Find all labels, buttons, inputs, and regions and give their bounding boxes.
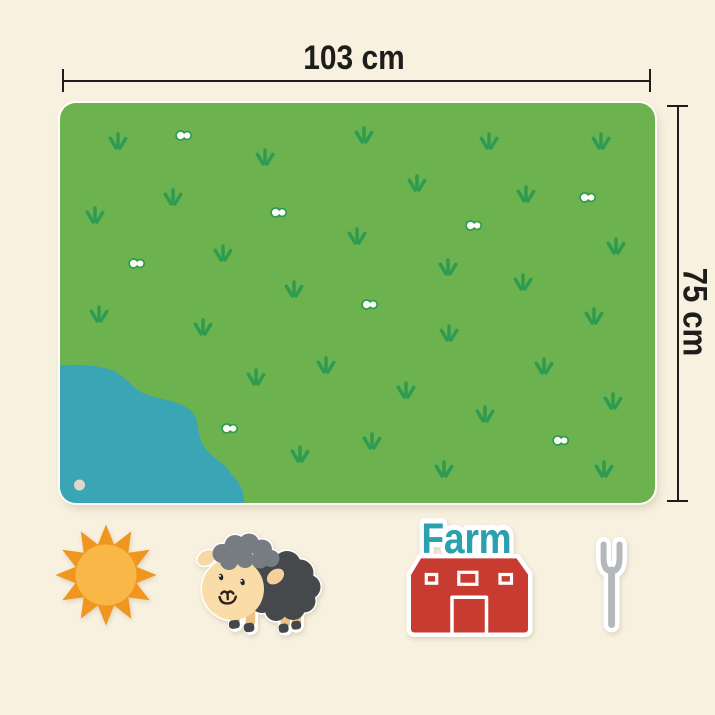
svg-text:Farm: Farm xyxy=(422,515,512,563)
